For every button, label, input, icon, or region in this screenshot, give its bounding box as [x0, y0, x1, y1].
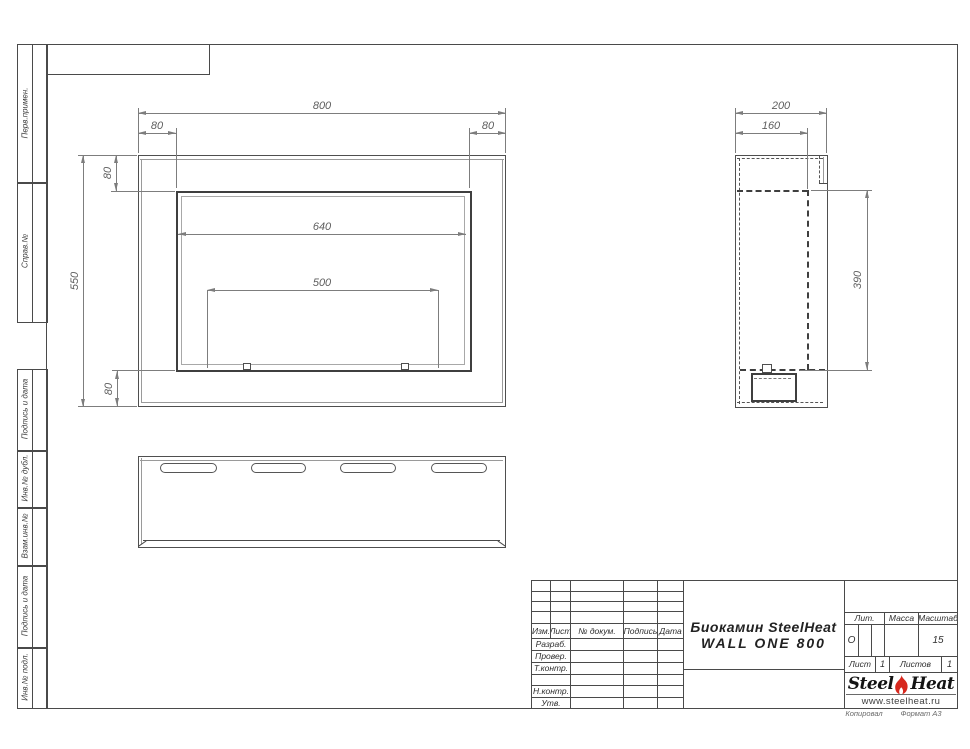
margin-box-label: Подпись и дата — [21, 576, 30, 637]
mass-value — [885, 624, 918, 656]
divider — [32, 566, 33, 648]
dimension-line — [469, 133, 506, 134]
divider — [32, 45, 33, 183]
product-name-line2: WALL ONE 800 — [683, 635, 844, 651]
drawing-sheet: Перв.примен. Справ.№ Подпись и дата Инв.… — [0, 0, 970, 749]
hidden-line — [754, 378, 791, 379]
dim-label-200: 200 — [772, 100, 790, 113]
mount-tab — [401, 363, 409, 370]
approval-row-label: Провер. — [532, 650, 570, 662]
dim-label-80-left: 80 — [151, 120, 163, 133]
lip-line — [143, 540, 500, 541]
dim-label-500: 500 — [313, 277, 331, 290]
extension-line — [207, 290, 208, 368]
inset-line — [140, 460, 503, 461]
dimension-line — [117, 371, 118, 406]
product-name: Биокамин SteelHeat WALL ONE 800 — [683, 619, 844, 651]
vent-slot — [431, 463, 487, 473]
sheet-label: Лист — [845, 656, 875, 672]
vent-slot — [340, 463, 396, 473]
logo-heat-text: Heat — [910, 674, 954, 694]
dim-label-640: 640 — [313, 221, 331, 234]
footer-format-label: Формат А3 — [900, 709, 941, 718]
hidden-line — [737, 158, 823, 159]
scale-header: Масштаб — [919, 612, 957, 624]
steelheat-logo: Steel Heat — [845, 673, 957, 695]
dimension-line — [138, 133, 176, 134]
dim-label-550: 550 — [69, 272, 81, 290]
extension-line — [811, 190, 872, 191]
hidden-line — [737, 402, 823, 403]
hidden-line — [819, 156, 820, 183]
designation-box-rotated — [46, 44, 210, 75]
notch-line — [819, 183, 827, 184]
grid-line — [858, 624, 859, 656]
divider — [32, 508, 33, 566]
extension-line — [469, 128, 470, 188]
logo-url: www.steelheat.ru — [845, 695, 957, 707]
title-block: Изм. Лист № докум. Подпись Дата Разраб. … — [531, 580, 958, 709]
lit-header: Лит. — [845, 612, 884, 624]
revision-col-date: Дата — [658, 623, 683, 638]
approval-row-label: Разраб. — [532, 638, 570, 650]
extension-line — [112, 406, 137, 407]
sheets-label: Листов — [890, 656, 941, 672]
revision-col-doc: № докум. — [571, 623, 623, 638]
divider — [32, 648, 33, 708]
dimension-line — [735, 113, 827, 114]
approval-row-label: Утв. — [532, 697, 570, 708]
dim-label-160: 160 — [762, 120, 780, 133]
dimension-line — [207, 290, 438, 291]
grid-line — [532, 611, 683, 612]
product-name-line1: Биокамин SteelHeat — [683, 619, 844, 635]
margin-box-label: Инв.№ подл. — [21, 653, 30, 700]
sheet-value: 1 — [876, 656, 889, 672]
mount-tab — [243, 363, 251, 370]
dimension-line — [83, 155, 84, 407]
margin-box-label: Инв.№ дубл. — [21, 455, 30, 502]
dim-label-800: 800 — [313, 100, 331, 113]
inset-line — [502, 159, 503, 403]
flame-icon — [894, 675, 909, 695]
inset-line — [140, 159, 504, 160]
margin-box-label: Перв.примен. — [21, 88, 30, 139]
extension-line — [800, 370, 872, 371]
dimension-line — [178, 234, 466, 235]
divider — [32, 370, 33, 451]
revision-col-izm: Изм. — [532, 623, 550, 638]
extension-line — [438, 290, 439, 368]
hidden-line — [737, 190, 808, 192]
margin-box-label: Взам.инв.№ — [21, 513, 30, 558]
hidden-line — [807, 190, 809, 370]
mass-header: Масса — [885, 612, 918, 624]
sheets-value: 1 — [942, 656, 957, 672]
footer-copied-label: Копировал — [845, 709, 882, 718]
approval-row-label: Н.контр. — [532, 685, 570, 697]
logo-steel-text: Steel — [848, 674, 894, 694]
scale-value: 15 — [919, 624, 957, 656]
divider — [32, 183, 33, 322]
inset-line — [141, 458, 142, 544]
burner-tab — [762, 364, 772, 373]
divider — [32, 451, 33, 508]
margin-box-label: Подпись и дата — [21, 379, 30, 440]
inset-line — [141, 402, 503, 403]
dimension-line — [735, 133, 808, 134]
extension-line — [78, 155, 137, 156]
grid-line — [532, 601, 683, 602]
hidden-line — [739, 158, 740, 404]
extension-line — [111, 191, 175, 192]
inset-line — [141, 159, 142, 403]
lit-value: О — [845, 624, 858, 656]
dimension-line — [867, 190, 868, 370]
revision-col-list: Лист — [551, 623, 570, 638]
notch-line — [823, 157, 824, 183]
approval-row-label: Т.контр. — [532, 662, 570, 674]
grid-line — [683, 669, 845, 670]
grid-line — [871, 624, 872, 656]
vent-slot — [251, 463, 306, 473]
dimension-line — [138, 113, 506, 114]
dim-label-390: 390 — [852, 271, 864, 289]
extension-line — [112, 370, 175, 371]
approval-row-label — [532, 674, 570, 685]
revision-col-sign: Подпись — [624, 623, 657, 638]
dim-label-80-top: 80 — [102, 167, 114, 179]
extension-line — [807, 128, 808, 189]
extension-line — [176, 128, 177, 188]
vent-slot — [160, 463, 217, 473]
margin-box-label: Справ.№ — [21, 234, 30, 268]
dim-label-80-bottom: 80 — [103, 383, 115, 395]
dimension-line — [116, 155, 117, 191]
dim-label-80-right: 80 — [482, 120, 494, 133]
grid-line — [532, 591, 683, 592]
